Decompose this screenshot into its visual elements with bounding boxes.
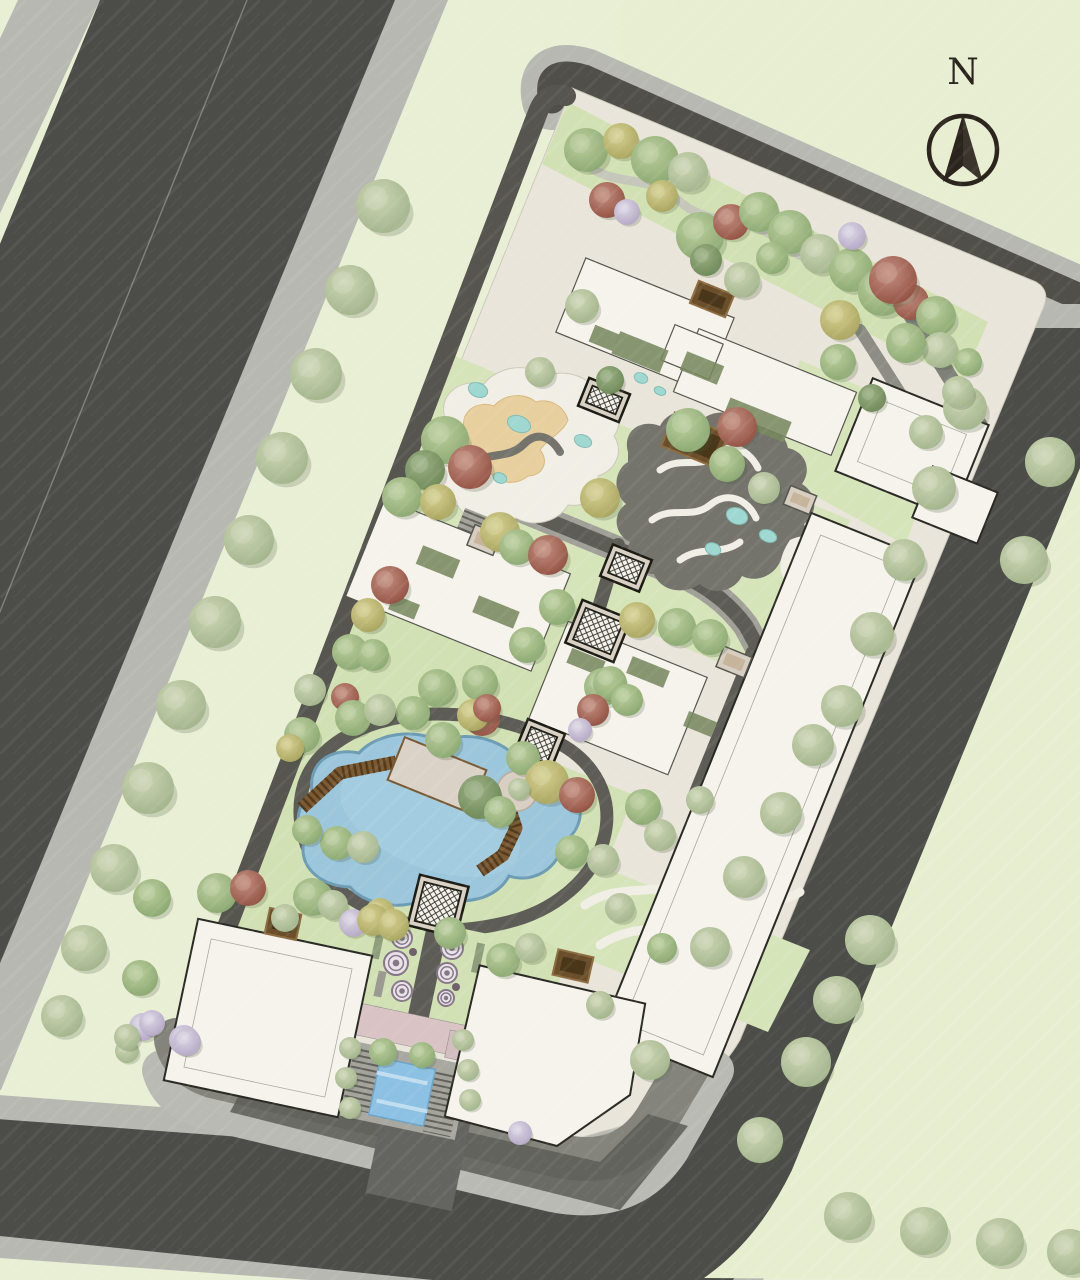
paper-texture: [0, 0, 1080, 1280]
layer-paper-texture: [0, 0, 1080, 1280]
site-plan-stage: N: [0, 0, 1080, 1280]
landscape-master-plan: N: [0, 0, 1080, 1280]
